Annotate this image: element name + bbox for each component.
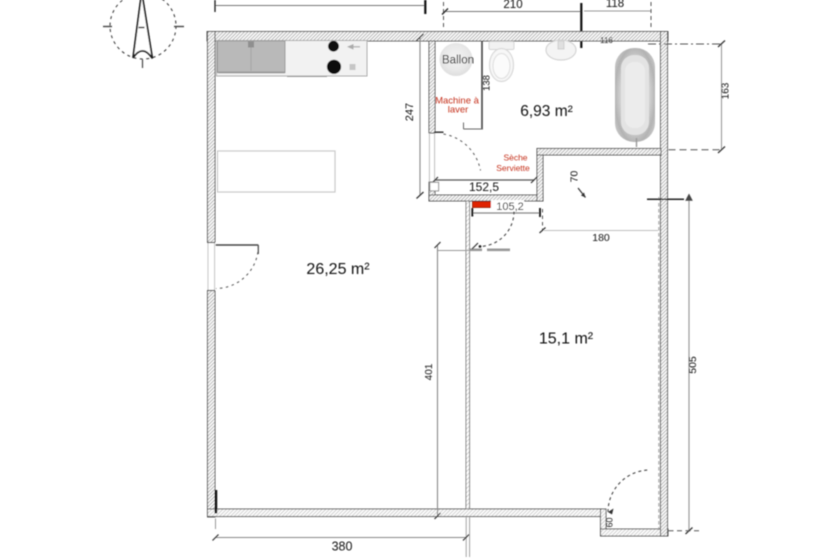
svg-text:Ballon: Ballon	[442, 55, 474, 67]
svg-text:138: 138	[482, 75, 493, 91]
svg-text:505: 505	[687, 356, 699, 374]
svg-text:60: 60	[605, 517, 615, 527]
svg-text:163: 163	[721, 82, 732, 99]
svg-text:116: 116	[600, 36, 613, 45]
svg-text:15,1 m²: 15,1 m²	[539, 331, 594, 348]
svg-text:247: 247	[404, 103, 416, 121]
svg-text:Sèche: Sèche	[503, 153, 527, 163]
svg-text:70: 70	[569, 171, 581, 183]
svg-text:380: 380	[332, 540, 353, 554]
svg-text:105,2: 105,2	[496, 201, 524, 213]
svg-text:26,25 m²: 26,25 m²	[306, 261, 370, 278]
svg-text:Serviette: Serviette	[496, 163, 530, 173]
svg-text:118: 118	[606, 0, 624, 10]
svg-text:152,5: 152,5	[469, 180, 499, 194]
svg-text:laver: laver	[448, 105, 469, 116]
svg-text:6,93 m²: 6,93 m²	[520, 103, 573, 120]
svg-text:401: 401	[424, 363, 435, 380]
svg-text:180: 180	[592, 232, 610, 244]
svg-text:210: 210	[503, 0, 522, 11]
